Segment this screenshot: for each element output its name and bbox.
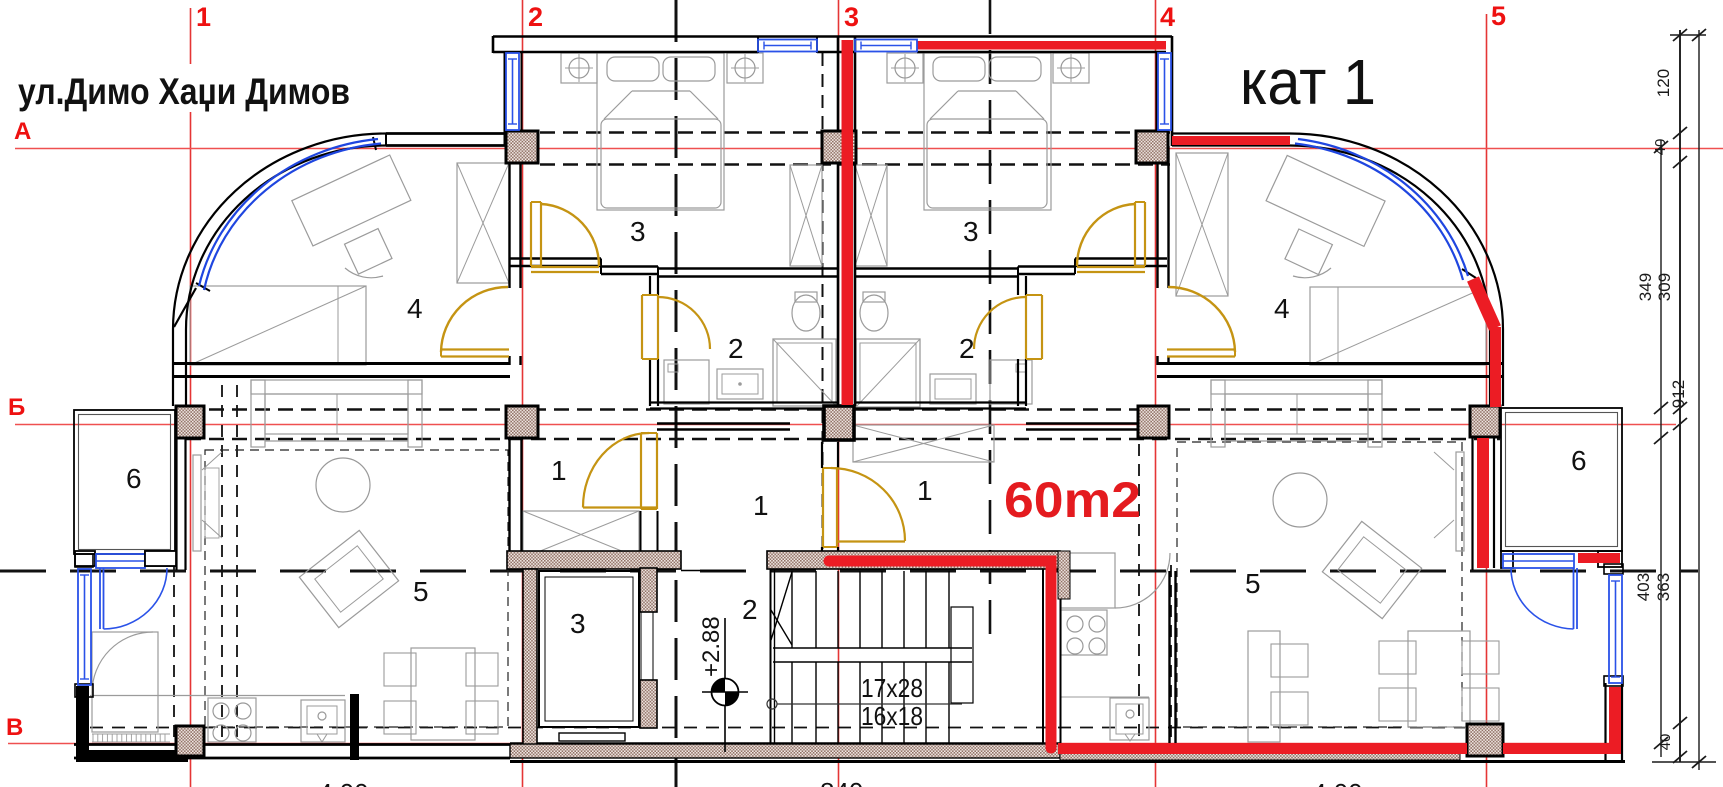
svg-text:4: 4 — [1160, 2, 1175, 32]
svg-text:3: 3 — [963, 216, 979, 247]
svg-text:3: 3 — [844, 2, 859, 32]
svg-text:4: 4 — [1274, 293, 1290, 324]
svg-text:2: 2 — [959, 333, 975, 364]
svg-text:2: 2 — [528, 2, 543, 32]
svg-text:3: 3 — [570, 608, 586, 639]
svg-text:60m2: 60m2 — [1004, 472, 1141, 528]
svg-text:1: 1 — [917, 475, 933, 506]
svg-text:6: 6 — [126, 463, 142, 494]
svg-text:3: 3 — [630, 216, 646, 247]
svg-text:5: 5 — [1245, 568, 1261, 599]
svg-text:А: А — [14, 118, 31, 145]
svg-text:6: 6 — [1571, 445, 1587, 476]
svg-text:1: 1 — [196, 2, 211, 32]
svg-text:4.00: 4.00 — [318, 778, 369, 787]
svg-text:40: 40 — [1652, 139, 1669, 156]
svg-text:5: 5 — [413, 576, 429, 607]
svg-text:1: 1 — [753, 490, 769, 521]
svg-text:Б: Б — [8, 394, 25, 421]
svg-text:363: 363 — [1654, 573, 1673, 601]
svg-text:4: 4 — [407, 293, 423, 324]
svg-text:16x18: 16x18 — [861, 701, 923, 731]
svg-text:2: 2 — [728, 333, 744, 364]
svg-text:кат 1: кат 1 — [1240, 46, 1376, 118]
svg-text:309: 309 — [1655, 273, 1674, 301]
svg-text:2: 2 — [742, 594, 758, 625]
svg-text:120: 120 — [1654, 69, 1673, 97]
svg-text:5: 5 — [1491, 1, 1506, 31]
svg-text:912: 912 — [1669, 380, 1688, 408]
svg-text:403: 403 — [1634, 573, 1653, 601]
svg-text:В: В — [6, 714, 23, 741]
svg-text:ул.Димо Хаџи Димов: ул.Димо Хаџи Димов — [18, 71, 350, 112]
svg-text:349: 349 — [1636, 273, 1655, 301]
svg-text:4.00: 4.00 — [1312, 778, 1363, 787]
svg-text:840: 840 — [820, 777, 863, 787]
svg-text:1: 1 — [551, 455, 567, 486]
svg-text:+2.88: +2.88 — [698, 616, 725, 677]
svg-text:17x28: 17x28 — [861, 673, 923, 703]
svg-text:40: 40 — [1657, 734, 1674, 751]
